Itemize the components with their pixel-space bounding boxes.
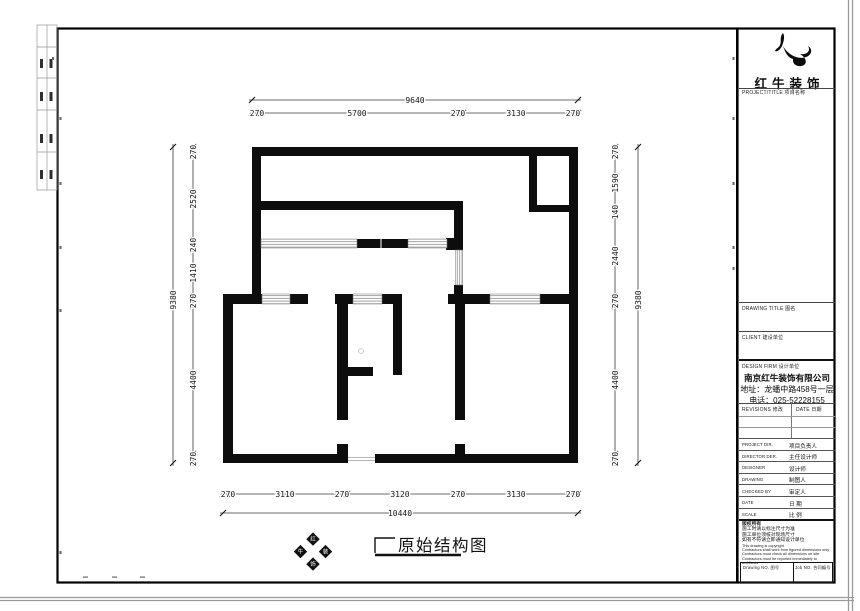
dim-label: 270 xyxy=(451,109,466,118)
tb-row-cn: 比 例 xyxy=(789,511,802,519)
stamp-char: 饰 xyxy=(310,560,316,568)
dim-label: 270 xyxy=(611,145,620,160)
tb-row-cn: 设计师 xyxy=(789,465,806,473)
plan-canvas: 9640 270 5700 270 3130 270 270 3110 270 … xyxy=(0,0,860,611)
stamp-char: 牛 xyxy=(298,548,304,556)
client-label: CLIENT 建设单位 xyxy=(739,334,835,341)
dim-label: 4400 xyxy=(611,370,620,389)
page-edge-lines xyxy=(0,0,854,611)
dim-label: 270 xyxy=(221,490,236,499)
company-phone: 电话：025-52228155 xyxy=(739,395,835,406)
dim-label: 3120 xyxy=(390,490,409,499)
tb-row-en: DIRECTOR DER. xyxy=(742,454,777,459)
dim-label: 9640 xyxy=(405,96,424,105)
dim-label: 3130 xyxy=(506,109,525,118)
dim-label: 1410 xyxy=(189,263,198,282)
dim-label: 270 xyxy=(566,109,581,118)
tb-row-cn: 制图人 xyxy=(789,476,806,484)
tb-row-en: DRAWING xyxy=(742,477,763,482)
drawing-sheet: 9640 270 5700 270 3130 270 270 3110 270 … xyxy=(0,0,860,611)
dim-label: 10440 xyxy=(388,509,412,518)
dim-label: 9380 xyxy=(169,290,178,309)
dim-label: 9380 xyxy=(634,290,643,309)
dim-label: 4400 xyxy=(189,370,198,389)
tb-row-en: PROJECT DIR. xyxy=(742,442,773,447)
drawing-title-group: 原始结构图 xyxy=(375,536,488,555)
dim-label: 270 xyxy=(250,109,265,118)
floor-plan-walls xyxy=(223,147,578,463)
dim-label: 3130 xyxy=(506,490,525,499)
company-address: 地址：龙蟠中路458号一层 xyxy=(739,384,835,395)
job-no-label: Job NO. 合同编号 xyxy=(793,563,832,571)
tb-row-en: CHECKED BY xyxy=(742,489,771,494)
drawing-title-label: DRAWING TITLE 图名 xyxy=(739,305,835,312)
dim-label: 270 xyxy=(189,145,198,160)
dim-label: 270 xyxy=(335,490,350,499)
tb-row-cn: 日 期 xyxy=(789,500,802,508)
drawing-no-label: Drawing NO. 图号 xyxy=(741,563,793,571)
tb-row-en: DESIGNER xyxy=(742,465,765,470)
dim-label: 140 xyxy=(611,205,620,220)
notes-block: 版权所有 施工时请以标注尺寸为准 施工单位须核对现场尺寸 如有不符请立即通知设计… xyxy=(742,522,833,566)
dim-label: 1590 xyxy=(611,173,620,192)
stamp-char: 红 xyxy=(310,535,316,543)
floor-plan-details xyxy=(348,349,375,461)
drawing-number-box: Drawing NO. 图号 Job NO. 合同编号 xyxy=(740,562,833,583)
dim-label: 2520 xyxy=(189,189,198,208)
dim-label: 240 xyxy=(189,238,198,253)
tb-row-cn: 主任设计师 xyxy=(789,453,817,461)
dim-label: 270 xyxy=(566,490,581,499)
bull-logo-icon xyxy=(757,32,817,74)
dim-label: 270 xyxy=(189,294,198,309)
tb-row-cn: 项目负责人 xyxy=(789,442,817,450)
dim-label: 3110 xyxy=(275,490,294,499)
title-block: 红牛装饰 PROJECT/TITLE 项目名称 DRAWING TITLE 图名… xyxy=(739,28,835,583)
tb-row-en: SCALE xyxy=(742,512,757,517)
design-firm-label: DESIGN FIRM 设计单位 xyxy=(739,363,835,370)
drawing-title: 原始结构图 xyxy=(398,536,488,555)
dimension-lines xyxy=(173,100,638,513)
dim-label: 2440 xyxy=(611,246,620,265)
dim-label: 270 xyxy=(611,452,620,467)
job-no-cell: Job NO. 合同编号 xyxy=(793,563,832,582)
dim-label: 270 xyxy=(611,294,620,309)
stamp-char: 装 xyxy=(323,548,329,556)
drawing-no-cell: Drawing NO. 图号 xyxy=(741,563,794,582)
tb-row-en: DATE xyxy=(742,500,754,505)
dim-label: 270 xyxy=(451,490,466,499)
dim-label: 270 xyxy=(189,452,198,467)
dim-label: 5700 xyxy=(347,109,366,118)
company-stamp: 红 牛 装 饰 xyxy=(294,532,332,570)
project-title-label: PROJECT/TITLE 项目名称 xyxy=(739,89,835,96)
revisions-date-label: DATE 日期 xyxy=(793,406,822,413)
tb-row-cn: 审定人 xyxy=(789,488,806,496)
company-name: 南京红牛装饰有限公司 xyxy=(739,373,835,384)
